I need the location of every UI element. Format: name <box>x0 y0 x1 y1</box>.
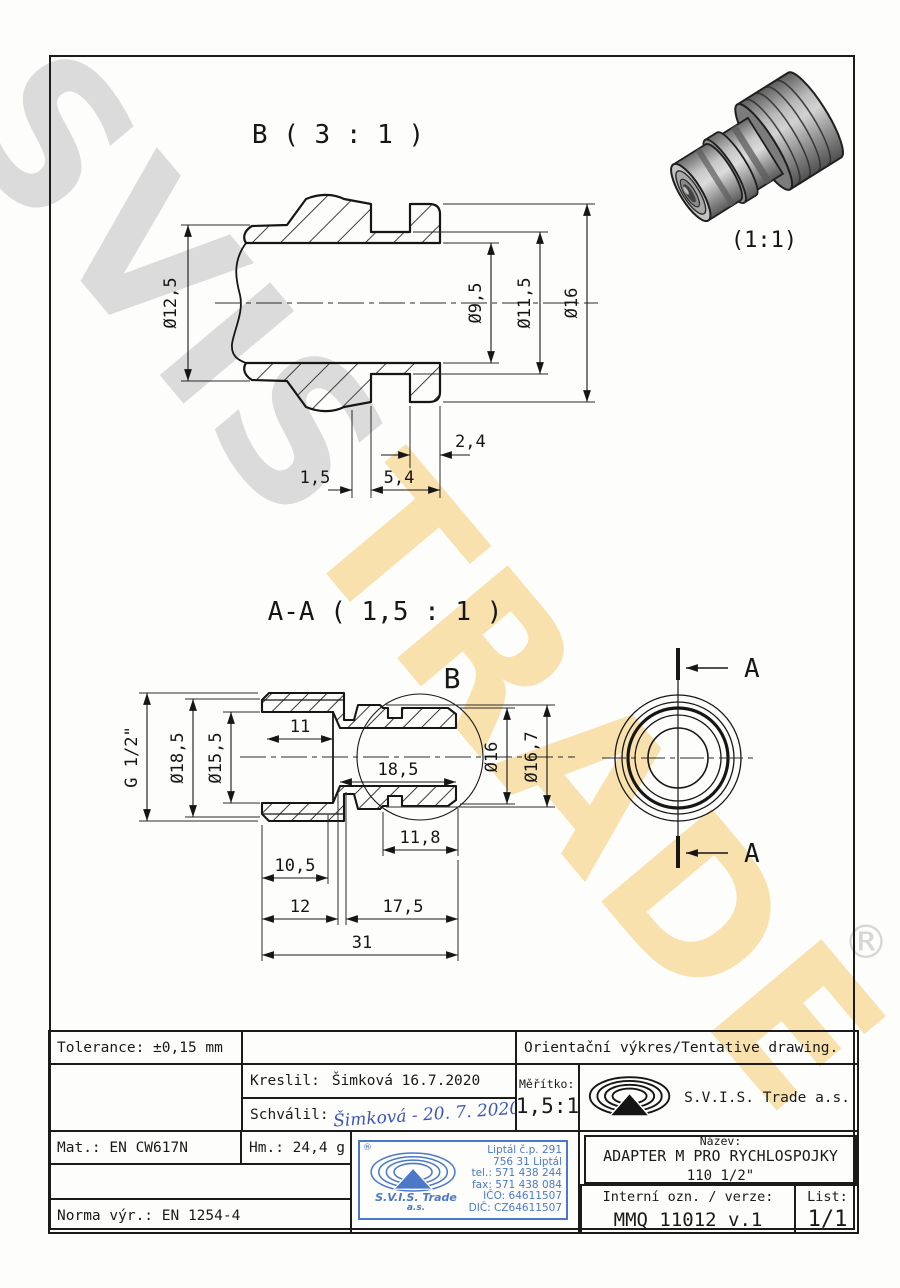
company-cell: S.V.I.S. Trade a.s. <box>578 1063 859 1132</box>
dim-2-4: 2,4 <box>455 432 486 452</box>
detail-b-bottom-wall <box>244 363 440 411</box>
meritko-label: Měřítko: <box>519 1077 574 1091</box>
stamp-address-line: DIČ: CZ64611507 <box>469 1203 562 1215</box>
detail-marker-b: B <box>444 662 461 695</box>
dim-d18-5: Ø18,5 <box>168 732 188 783</box>
svis-logo-icon <box>587 1075 672 1121</box>
dim-17-5: 17,5 <box>383 897 424 917</box>
cut-label-a-top: A <box>744 654 760 684</box>
stamp-cell: ® S.V.I.S. Trade a.s. Liptál č.p. 291 <box>350 1130 580 1234</box>
part-photo: (1:1) <box>655 66 851 253</box>
mat-cell: Mat.: EN CW617N <box>48 1130 242 1165</box>
empty-cell-left <box>48 1063 243 1132</box>
dim-d16-7: Ø16,7 <box>522 731 542 782</box>
dim-12: 12 <box>290 897 310 917</box>
dim-d9-5: Ø9,5 <box>466 283 486 324</box>
empty-cell-top <box>241 1030 517 1065</box>
tolerance-text: Tolerance: ±0,15 mm <box>57 1040 223 1056</box>
mat-text: Mat.: EN CW617N <box>57 1140 188 1156</box>
drawing-sheet: SVISTRADE ® <box>0 0 900 1288</box>
hm-cell: Hm.: 24,4 g <box>240 1130 352 1165</box>
title-block: Tolerance: ±0,15 mm Orientační výkres/Te… <box>48 1030 859 1234</box>
schvalil-label: Schválil: <box>250 1107 329 1123</box>
interni-value: MMQ 11012 v.1 <box>614 1209 763 1231</box>
interni-cell: Interní ozn. / verze: MMQ 11012 v.1 <box>580 1184 796 1234</box>
dim-10-5: 10,5 <box>275 856 316 876</box>
interni-label: Interní ozn. / verze: <box>603 1189 774 1205</box>
meritko-value: 1,5:1 <box>516 1094 579 1118</box>
dim-31: 31 <box>352 933 372 953</box>
cut-label-a-bottom: A <box>744 839 760 869</box>
view-section-aa: A-A ( 1,5 : 1 ) B <box>122 597 575 961</box>
dim-g12: G 1/2" <box>122 726 142 787</box>
section-aa-bottom-wall <box>262 786 456 821</box>
norma-cell: Norma výr.: EN 1254-4 <box>48 1198 352 1234</box>
list-label: List: <box>807 1189 848 1205</box>
dim-d11-5: Ø11,5 <box>515 277 535 328</box>
nazev-line1: ADAPTER M PRO RYCHLOSPOJKY <box>603 1148 838 1165</box>
schvalil-cell: Schválil: Šimková - 20. 7. 2020 <box>241 1097 517 1132</box>
kreslil-label: Kreslil: <box>250 1073 320 1089</box>
empty-cell-bottom <box>48 1163 352 1200</box>
drawing-note-text: Orientační výkres/Tentative drawing. <box>524 1040 838 1056</box>
nazev-box: Název: ADAPTER M PRO RYCHLOSPOJKY 110 1/… <box>584 1135 857 1184</box>
dim-d12-5: Ø12,5 <box>161 277 181 328</box>
norma-text: Norma výr.: EN 1254-4 <box>57 1208 240 1224</box>
detail-b-dim-lines <box>188 204 587 490</box>
dim-11: 11 <box>290 717 310 737</box>
dim-11-8: 11,8 <box>400 828 441 848</box>
section-aa-dim-lines <box>147 693 547 955</box>
dim-5-4: 5,4 <box>384 468 415 488</box>
schvalil-signature: Šimková - 20. 7. 2020 <box>332 1098 517 1131</box>
dim-d16: Ø16 <box>562 288 582 319</box>
right-block-cell: Název: ADAPTER M PRO RYCHLOSPOJKY 110 1/… <box>578 1130 859 1234</box>
kreslil-value: Šimková 16.7.2020 <box>332 1073 480 1089</box>
detail-b-top-wall <box>244 195 440 243</box>
drawing-note-cell: Orientační výkres/Tentative drawing. <box>515 1030 859 1065</box>
photo-scale-label: (1:1) <box>731 228 797 253</box>
section-aa-title: A-A ( 1,5 : 1 ) <box>268 597 503 627</box>
view-detail-b: B ( 3 : 1 ) <box>161 120 598 498</box>
stamp-address-line: Liptál č.p. 291 <box>469 1145 562 1157</box>
company-name: S.V.I.S. Trade a.s. <box>684 1090 850 1106</box>
dim-18-5: 18,5 <box>378 760 419 780</box>
list-value: 1/1 <box>808 1207 848 1232</box>
hm-text: Hm.: 24,4 g <box>249 1140 345 1156</box>
kreslil-cell: Kreslil: Šimková 16.7.2020 <box>241 1063 517 1099</box>
stamp-address: Liptál č.p. 291 756 31 Liptál tel.: 571 … <box>469 1145 562 1215</box>
tolerance-cell: Tolerance: ±0,15 mm <box>48 1030 243 1065</box>
stamp-company-name: S.V.I.S. Trade a.s. <box>368 1192 464 1214</box>
stamp-logo-icon <box>366 1152 461 1192</box>
dim-d16-aa: Ø16 <box>482 742 502 773</box>
dim-d15-5: Ø15,5 <box>206 732 226 783</box>
list-cell: List: 1/1 <box>794 1184 859 1234</box>
meritko-cell: Měřítko: 1,5:1 <box>515 1063 580 1132</box>
dim-1-5: 1,5 <box>300 468 331 488</box>
nazev-line2: 110 1/2" <box>687 1168 754 1184</box>
section-aa-extension-lines <box>139 693 555 961</box>
company-stamp: ® S.V.I.S. Trade a.s. Liptál č.p. 291 <box>358 1140 568 1220</box>
detail-b-title: B ( 3 : 1 ) <box>252 120 424 150</box>
view-end: A A <box>602 648 760 869</box>
